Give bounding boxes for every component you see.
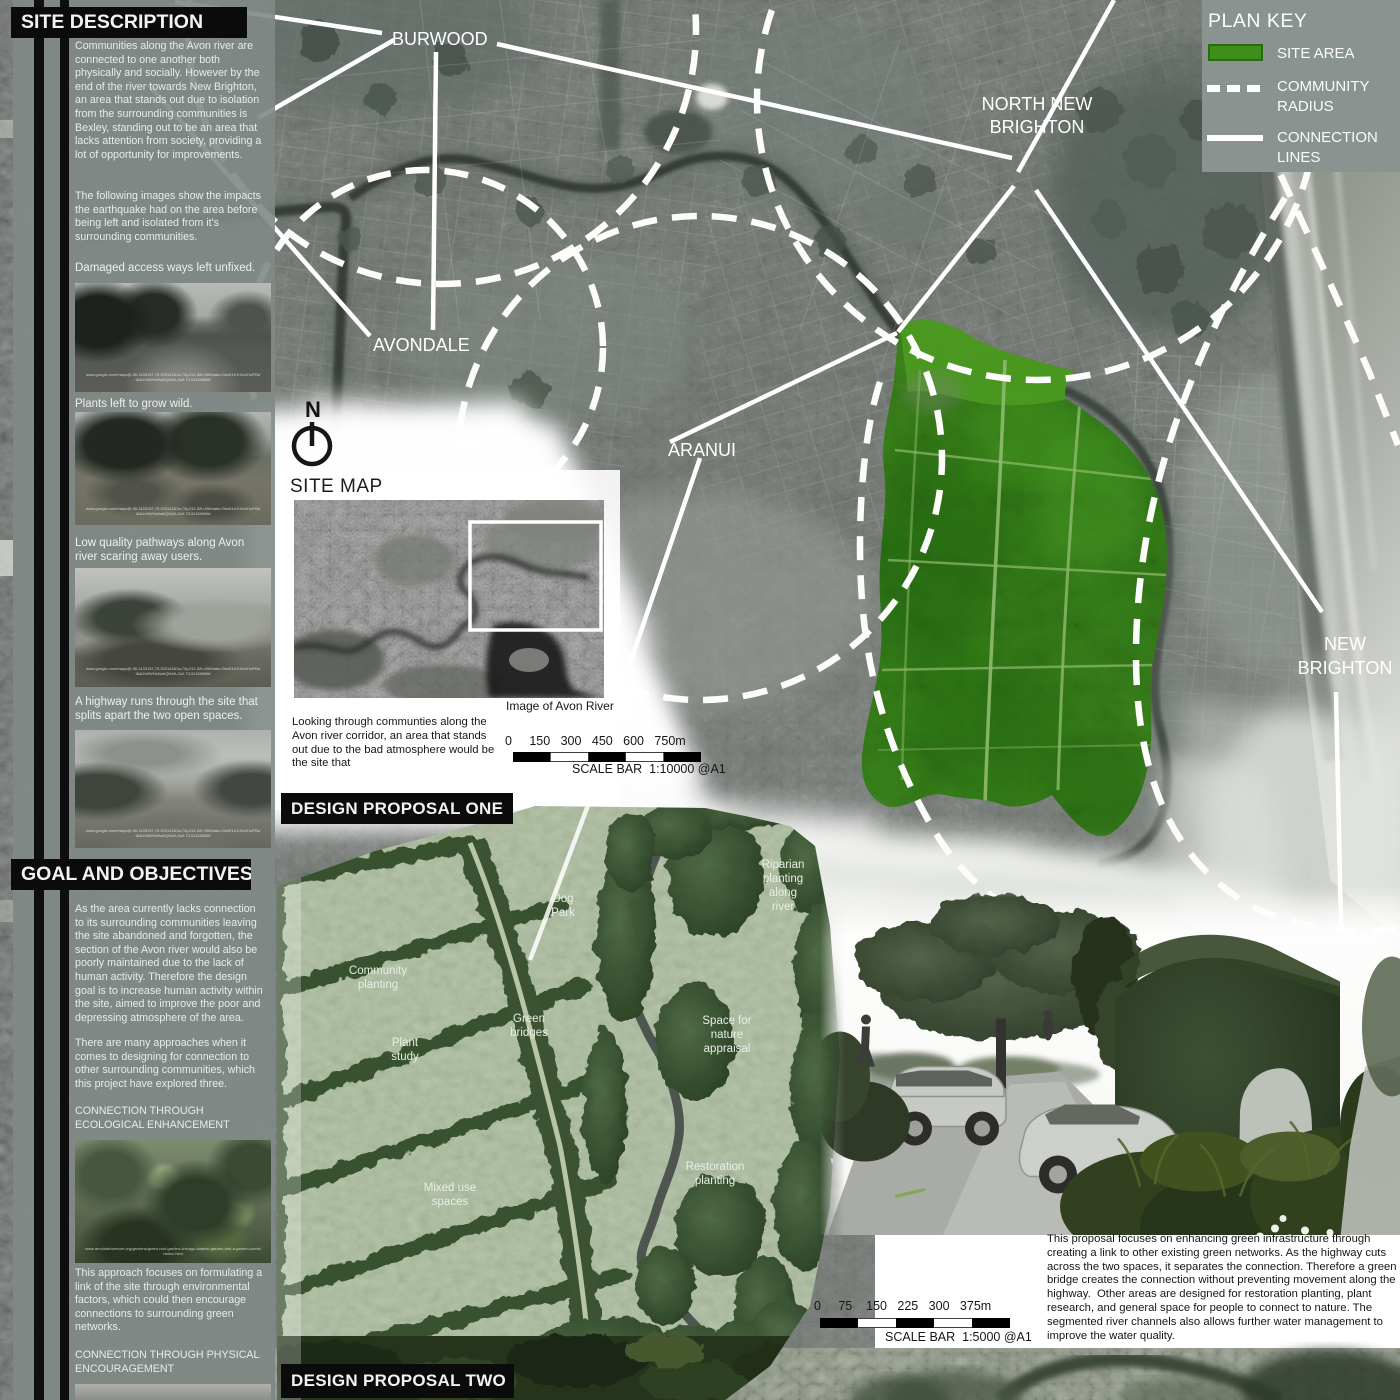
svg-text:Park: Park [551, 907, 575, 919]
svg-text:AVONDALE: AVONDALE [373, 335, 470, 355]
svg-text:along: along [769, 887, 797, 899]
svg-text:Community: Community [349, 965, 407, 977]
svg-text:NEW: NEW [1324, 634, 1366, 654]
svg-text:nature: nature [711, 1029, 744, 1041]
svg-text:Dog: Dog [552, 893, 573, 905]
svg-text:NORTH NEW: NORTH NEW [982, 94, 1093, 114]
svg-text:Space for: Space for [702, 1015, 751, 1027]
svg-text:study: study [391, 1051, 419, 1063]
svg-text:bridges: bridges [510, 1027, 548, 1039]
svg-text:river: river [772, 901, 795, 913]
svg-text:Riparian: Riparian [762, 859, 805, 871]
svg-text:BRIGHTON: BRIGHTON [990, 117, 1085, 137]
svg-text:spaces: spaces [432, 1196, 469, 1208]
svg-text:planting: planting [358, 979, 398, 991]
svg-text:N: N [305, 397, 321, 422]
svg-text:planting: planting [763, 873, 803, 885]
svg-text:Restoration: Restoration [686, 1161, 745, 1173]
svg-text:Green: Green [513, 1013, 545, 1025]
svg-text:BURWOOD: BURWOOD [392, 29, 488, 49]
svg-text:BRIGHTON: BRIGHTON [1298, 658, 1393, 678]
svg-text:planting: planting [695, 1175, 735, 1187]
svg-text:Mixed use: Mixed use [424, 1182, 476, 1194]
svg-text:appraisal: appraisal [704, 1043, 751, 1055]
svg-text:ARANUI: ARANUI [668, 440, 736, 460]
svg-text:Plant: Plant [392, 1037, 419, 1049]
